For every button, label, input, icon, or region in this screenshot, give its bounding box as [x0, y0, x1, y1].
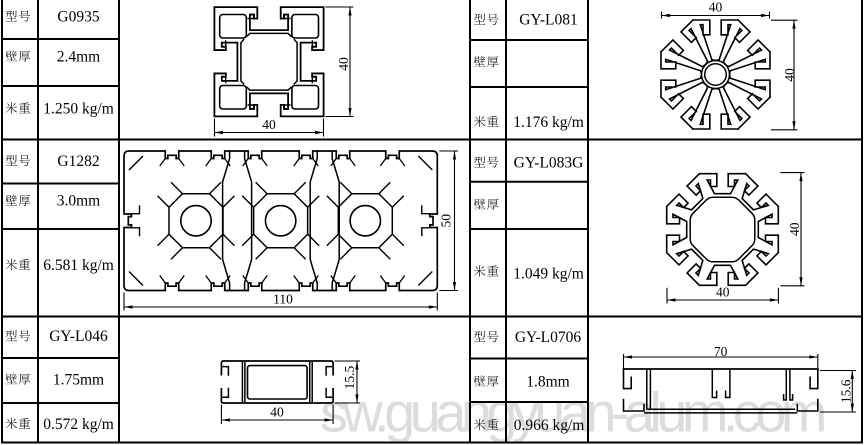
svg-text:G0935: G0935 [57, 8, 99, 25]
svg-text:2.4mm: 2.4mm [57, 48, 101, 65]
svg-text:40: 40 [262, 117, 276, 132]
svg-text:40: 40 [270, 405, 284, 420]
svg-text:sw.guangyuan-alum.com: sw.guangyuan-alum.com [320, 381, 824, 444]
svg-text:15.5: 15.5 [342, 365, 357, 389]
svg-text:GY-L046: GY-L046 [49, 328, 108, 345]
svg-text:1.176 kg/m: 1.176 kg/m [513, 114, 584, 131]
svg-text:GY-L083G: GY-L083G [514, 154, 584, 171]
svg-text:1.75mm: 1.75mm [53, 371, 104, 388]
svg-text:40: 40 [336, 57, 351, 71]
svg-text:1.049 kg/m: 1.049 kg/m [513, 265, 584, 282]
svg-text:GY-L081: GY-L081 [519, 12, 578, 29]
svg-text:G1282: G1282 [57, 153, 99, 170]
svg-text:110: 110 [273, 292, 293, 307]
svg-text:40: 40 [716, 285, 730, 300]
svg-text:40: 40 [709, 0, 723, 15]
svg-text:1.8mm: 1.8mm [526, 373, 570, 390]
svg-text:0.966 kg/m: 0.966 kg/m [514, 417, 585, 434]
svg-text:0.572 kg/m: 0.572 kg/m [43, 416, 114, 433]
svg-text:40: 40 [787, 222, 802, 236]
svg-text:3.0mm: 3.0mm [57, 193, 101, 210]
svg-text:6.581 kg/m: 6.581 kg/m [43, 257, 114, 274]
svg-text:40: 40 [782, 68, 797, 82]
svg-text:GY-L0706: GY-L0706 [515, 329, 582, 346]
svg-text:50: 50 [439, 214, 454, 228]
svg-text:70: 70 [714, 344, 728, 359]
svg-text:15.6: 15.6 [839, 379, 854, 403]
svg-text:1.250 kg/m: 1.250 kg/m [43, 100, 114, 117]
